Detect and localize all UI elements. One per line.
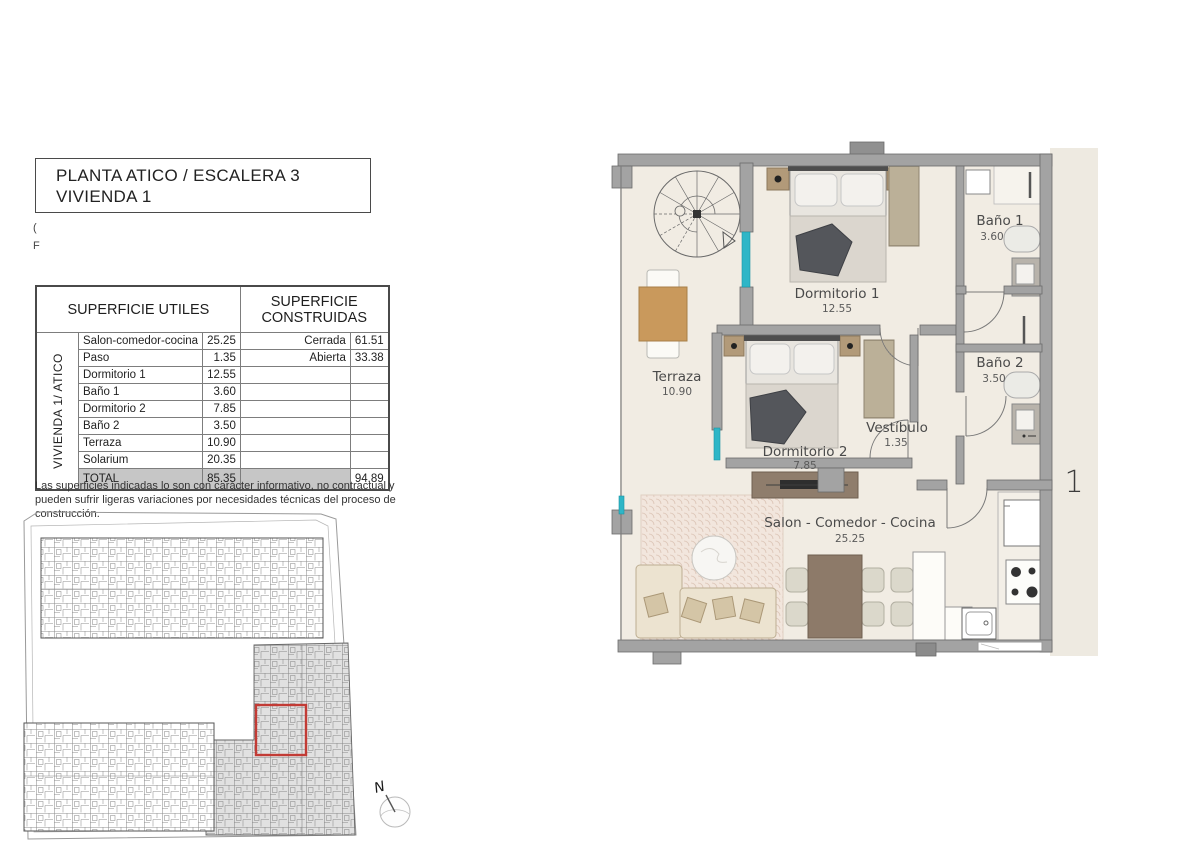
wall-pillar [653,652,681,664]
room-name-cell: Dormitorio 1 [79,367,203,384]
cons-name-cell [240,401,350,418]
site-wing-bottom [24,723,214,831]
wall-pillar [916,643,936,656]
stove [1006,560,1041,604]
table-row: Baño 2 3.50 [36,418,389,435]
wall-bath2-top [956,344,1042,352]
label-bano2: Baño 2 [976,355,1023,371]
room-m2-cell: 3.50 [203,418,241,435]
area-dormitorio2: 7.85 [793,460,816,472]
spiral-stairs [654,171,740,257]
label-dormitorio2: Dormitorio 2 [763,444,848,460]
wall-d1-d2 [717,325,880,335]
table-row: Baño 1 3.60 [36,384,389,401]
pillow [841,174,883,206]
header-construidas: SUPERFICIE CONSTRUIDAS [240,286,388,333]
room-m2-cell: 3.60 [203,384,241,401]
cons-m2-cell [350,418,388,435]
label-salon: Salon - Comedor - Cocina [764,515,936,531]
window [714,428,720,460]
room-name-cell: Solarium [79,452,203,469]
table-row: Solarium 20.35 [36,452,389,469]
vertical-label-cell: VIVIENDA 1/ ATICO [36,333,79,491]
area-vestibulo: 1.35 [884,437,907,449]
surface-table: SUPERFICIE UTILES SUPERFICIE CONSTRUIDAS… [35,285,390,491]
coffee-table [692,536,736,580]
vertical-label: VIVIENDA 1/ ATICO [51,353,65,469]
washing-machine [966,170,990,194]
label-bano1: Baño 1 [976,213,1023,229]
dining-table [808,555,862,638]
label-dormitorio1: Dormitorio 1 [795,286,880,302]
site-key-plan: N [18,505,418,848]
pillow [795,174,837,206]
room-name-cell: Terraza [79,435,203,452]
bathtub [1004,226,1040,252]
cons-m2-cell [350,452,388,469]
wall-bath2-bottom [987,480,1052,490]
room-m2-cell: 12.55 [203,367,241,384]
header-utiles: SUPERFICIE UTILES [36,286,240,333]
wall-paso [920,325,956,335]
fridge [1004,500,1041,546]
pillow [794,344,834,374]
room-m2-cell: 1.35 [203,350,241,367]
cons-name-cell: Abierta [240,350,350,367]
wall-d2-right [910,335,918,422]
area-dormitorio1: 12.55 [822,303,852,315]
wall-top [618,154,1052,166]
cons-m2-cell: 61.51 [350,333,388,350]
shower [994,166,1040,204]
cons-m2-cell [350,367,388,384]
wardrobe [889,166,919,246]
area-bano1: 3.60 [980,231,1003,243]
cons-name-cell [240,367,350,384]
plan-title-line2: VIVIENDA 1 [56,187,152,207]
margin-fragment-bottom: F [33,240,40,252]
bathtub [1004,372,1040,398]
wall-bath1-bottom-a [956,286,966,294]
room-m2-cell: 7.85 [203,401,241,418]
table-row: Terraza 10.90 [36,435,389,452]
window [742,232,750,287]
bottom-window [978,642,1042,651]
title-block: PLANTA ATICO / ESCALERA 3 VIVIENDA 1 [35,158,371,213]
room-name-cell: Dormitorio 2 [79,401,203,418]
area-salon: 25.25 [835,533,865,545]
cons-m2-cell: 33.38 [350,350,388,367]
room-m2-cell: 10.90 [203,435,241,452]
terrace-table [639,287,687,341]
wall-vestibule-bottom [917,480,947,490]
pillow [750,344,790,374]
wardrobe [864,340,894,418]
wall-bath-left-mid [956,294,964,392]
cons-name-cell [240,418,350,435]
wall-pillar [818,468,844,492]
cons-m2-cell [350,384,388,401]
table-row: Dormitorio 1 12.55 [36,367,389,384]
cons-m2-cell [350,401,388,418]
plan-title-line1: PLANTA ATICO / ESCALERA 3 [56,166,300,186]
north-compass-icon: N [372,778,410,827]
area-bano2: 3.50 [982,373,1005,385]
unit-number: 1 [1064,465,1083,500]
site-wing-top [41,538,323,638]
kitchen-island [913,552,945,640]
stair-landing-band [1050,148,1098,656]
table-row: Dormitorio 2 7.85 [36,401,389,418]
wall-d1-left-stub [740,287,753,329]
wall-pillar [612,166,632,188]
north-label: N [372,778,387,796]
wall-d2-left [712,333,722,430]
wall-right [1040,154,1052,652]
label-terraza: Terraza [652,369,702,385]
wall-bath1-bottom-b [1004,286,1042,294]
wall-bath1-left [956,166,964,292]
wall-d1-left [740,163,753,232]
table-row: VIVIENDA 1/ ATICO Salon-comedor-cocina 2… [36,333,389,350]
room-name-cell: Paso [79,350,203,367]
area-terraza: 10.90 [662,386,692,398]
room-m2-cell: 20.35 [203,452,241,469]
site-wing-shaded [206,643,355,835]
wall-bath-left-low [956,436,964,484]
cons-name-cell [240,452,350,469]
label-vestibulo: Vestíbulo [866,420,928,436]
table-header-row: SUPERFICIE UTILES SUPERFICIE CONSTRUIDAS [36,286,389,333]
cons-name-cell [240,435,350,452]
floor-plan: 1 [600,140,1120,692]
margin-fragment-top: ( [33,222,37,234]
cons-name-cell: Cerrada [240,333,350,350]
table-row: Paso 1.35 Abierta 33.38 [36,350,389,367]
room-name-cell: Baño 1 [79,384,203,401]
cons-m2-cell [350,435,388,452]
room-m2-cell: 25.25 [203,333,241,350]
window [619,496,624,514]
room-name-cell: Baño 2 [79,418,203,435]
plan-sheet: PLANTA ATICO / ESCALERA 3 VIVIENDA 1 ( F… [0,0,1200,848]
cons-name-cell [240,384,350,401]
room-name-cell: Salon-comedor-cocina [79,333,203,350]
